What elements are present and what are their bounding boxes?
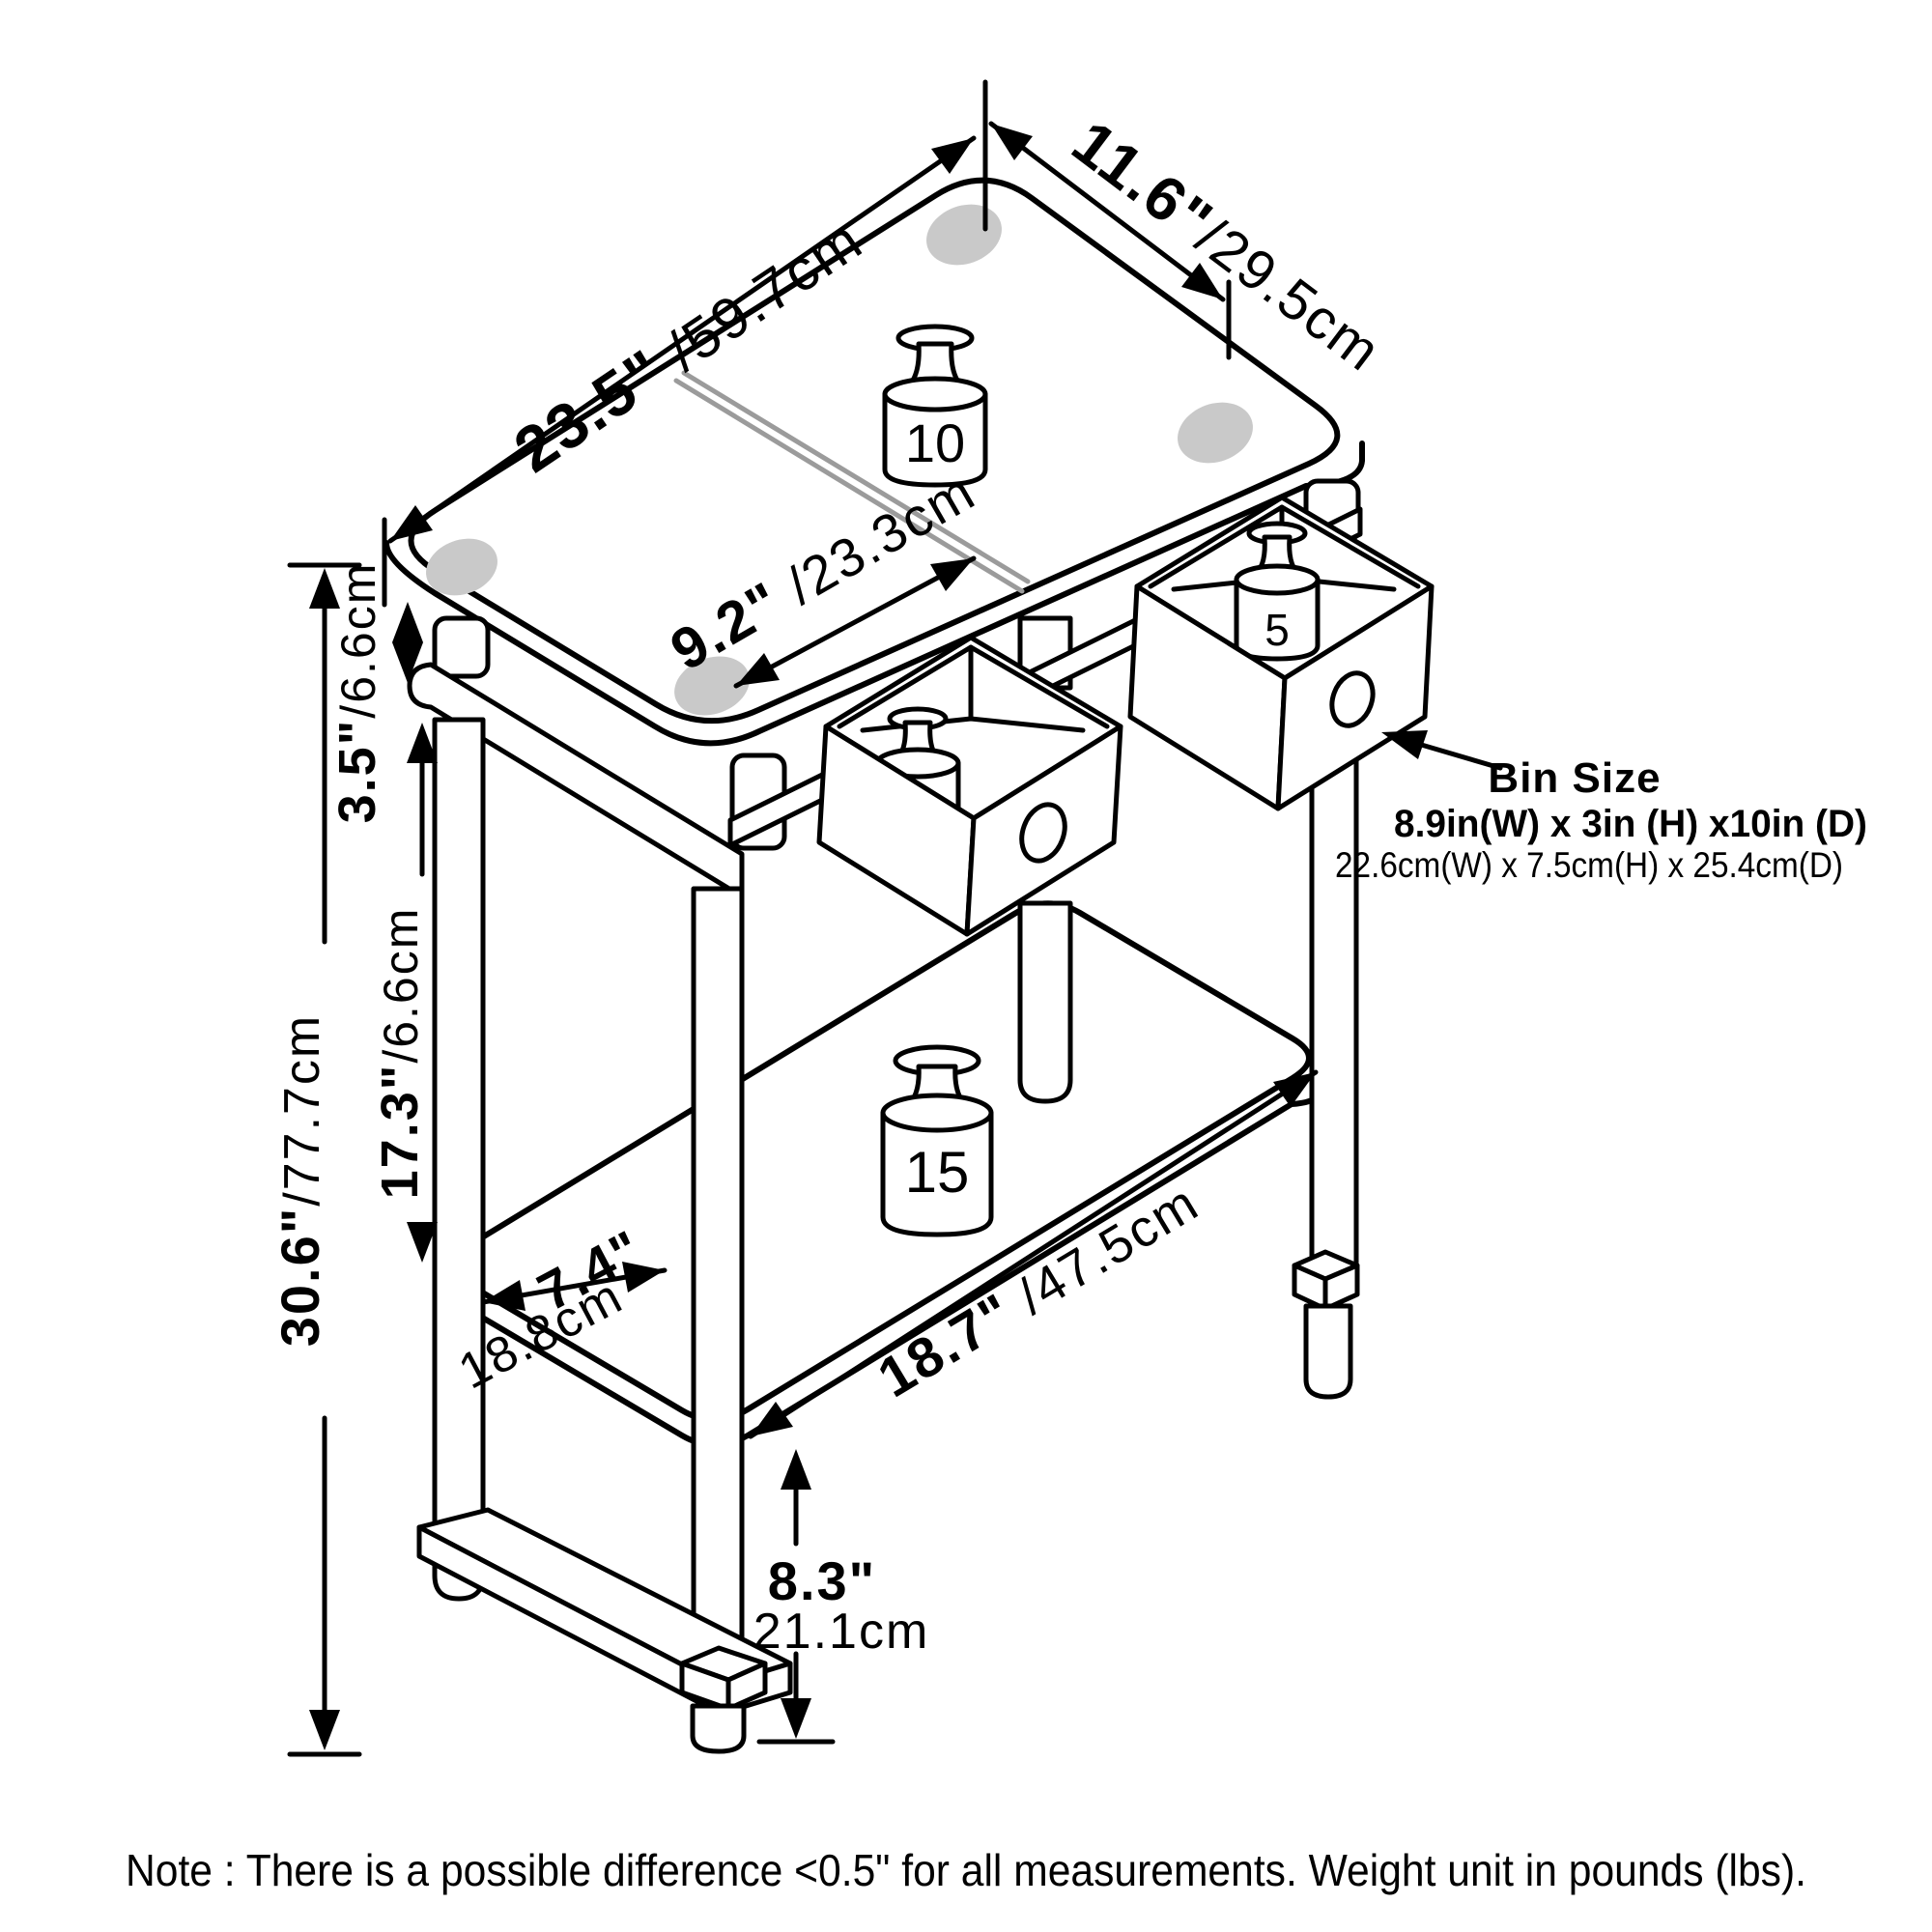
back-pole-lower [1020,903,1070,1101]
bin-size-heading: Bin Size [1488,754,1661,802]
dim-clearance-cm-label: 21.1cm [753,1604,930,1660]
dim-height-label: 30.6"/77.7cm [270,1014,330,1348]
front-leg [694,889,742,1663]
bin-size-metric: 22.6cm(W) x 7.5cm(H) x 25.4cm(D) [1335,845,1843,885]
weight-15-label: 15 [905,1140,970,1205]
weight-5-right-label: 5 [1264,605,1290,655]
bin-size-callout: Bin Size 8.9in(W) x 3in (H) x10in (D) 22… [1335,730,1867,885]
diagram-canvas: 5 5 [0,0,1932,1932]
dim-mid-label: 17.3"/6.6cm [371,907,429,1200]
furniture-dimension-diagram: 5 5 [0,0,1932,1932]
left-leg [435,720,483,1599]
support-post [435,618,488,676]
dim-clearance-in-label: 8.3" [768,1550,876,1611]
leg-foot [1306,1306,1350,1397]
note-text: Note : There is a possible difference <0… [126,1845,1806,1895]
bin-size-inches: 8.9in(W) x 3in (H) x10in (D) [1394,803,1867,845]
